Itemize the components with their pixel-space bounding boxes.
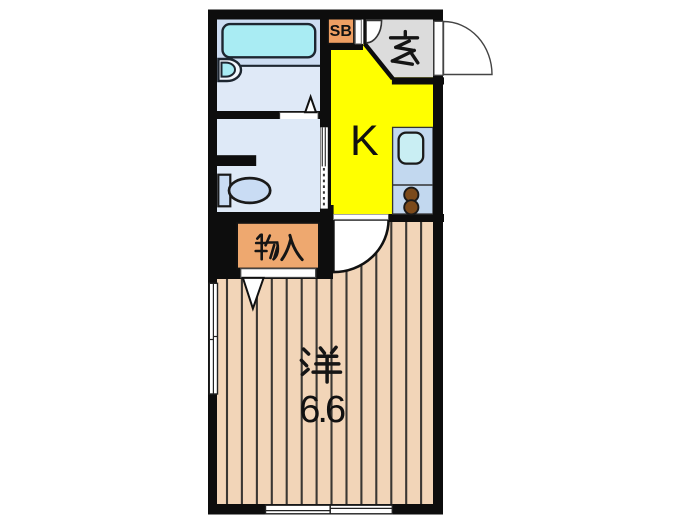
svg-text:6.6: 6.6 bbox=[299, 389, 345, 431]
svg-text:SB: SB bbox=[330, 23, 352, 40]
svg-text:K: K bbox=[350, 117, 379, 165]
